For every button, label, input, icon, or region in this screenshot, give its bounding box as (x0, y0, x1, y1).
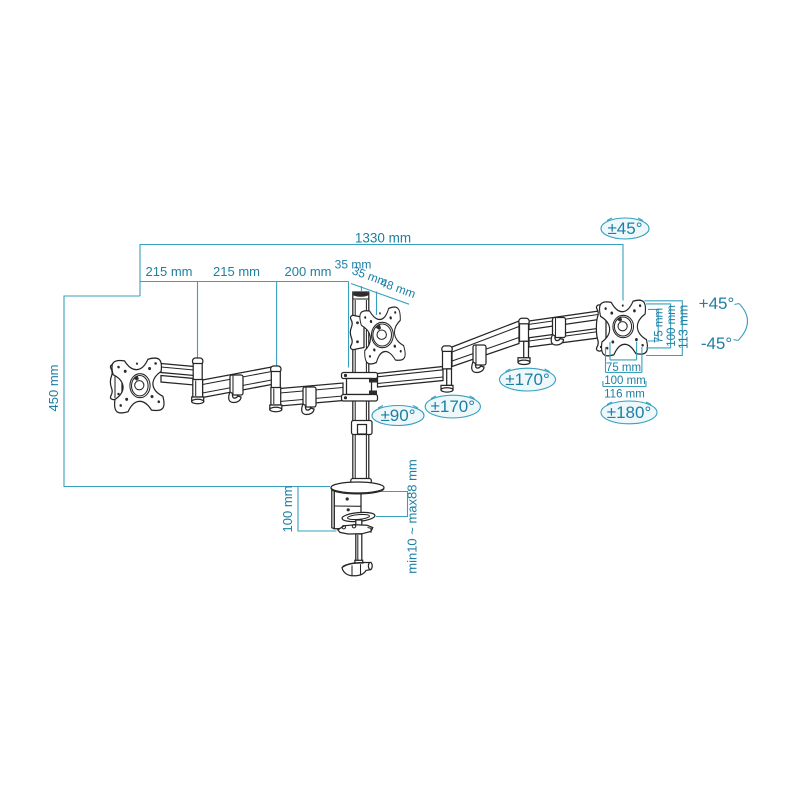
svg-text:±90°: ±90° (380, 406, 415, 425)
svg-text:100 mm: 100 mm (604, 375, 646, 387)
svg-text:±180°: ±180° (607, 403, 652, 422)
svg-text:75 mm: 75 mm (606, 362, 641, 374)
svg-text:-45°: -45° (701, 334, 732, 353)
svg-text:215 mm: 215 mm (146, 264, 193, 279)
svg-text:±45°: ±45° (607, 219, 642, 238)
svg-text:±170°: ±170° (431, 397, 476, 416)
svg-text:116 mm: 116 mm (604, 389, 645, 401)
svg-text:48 mm: 48 mm (378, 275, 417, 301)
svg-text:200 mm: 200 mm (285, 264, 332, 279)
svg-text:1330 mm: 1330 mm (355, 231, 411, 246)
svg-text:min10 ~ max88 mm: min10 ~ max88 mm (405, 459, 420, 574)
svg-text:450 mm: 450 mm (46, 365, 61, 412)
svg-text:±170°: ±170° (505, 370, 550, 389)
svg-text:215 mm: 215 mm (213, 264, 260, 279)
svg-text:100 mm: 100 mm (280, 486, 295, 533)
svg-text:113 mm: 113 mm (677, 305, 691, 349)
svg-text:+45°: +45° (699, 294, 735, 313)
svg-text:75 mm: 75 mm (654, 308, 666, 343)
